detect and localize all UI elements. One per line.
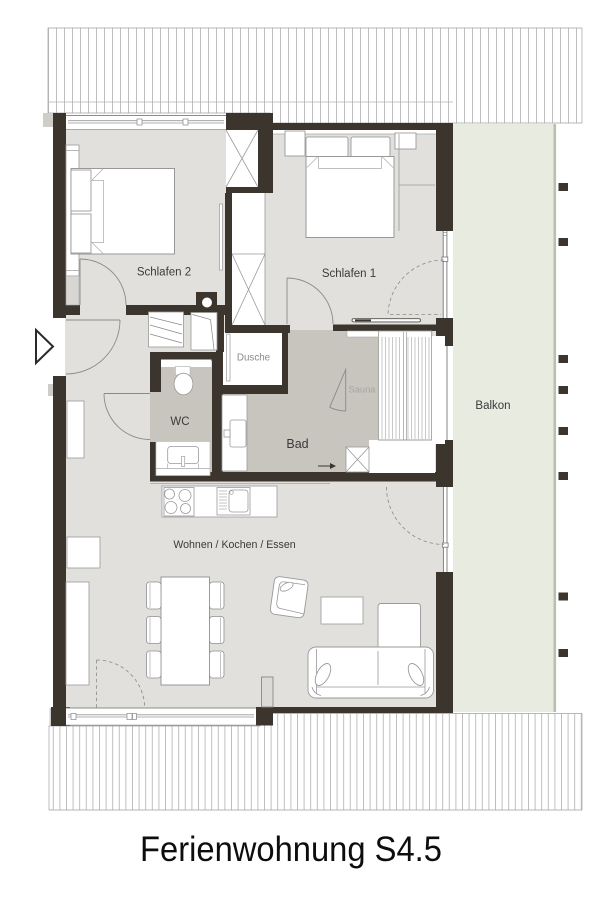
svg-text:Balkon: Balkon [475, 400, 510, 412]
svg-text:Ferienwohnung S4.5: Ferienwohnung S4.5 [140, 830, 442, 870]
svg-text:Schlafen 2: Schlafen 2 [137, 267, 191, 279]
svg-text:Wohnen / Kochen / Essen: Wohnen / Kochen / Essen [173, 539, 295, 551]
svg-text:Schlafen 1: Schlafen 1 [322, 268, 376, 280]
svg-text:Sauna: Sauna [349, 385, 377, 395]
svg-text:Bad: Bad [286, 437, 308, 451]
svg-text:Dusche: Dusche [237, 353, 271, 364]
svg-text:WC: WC [170, 416, 189, 428]
